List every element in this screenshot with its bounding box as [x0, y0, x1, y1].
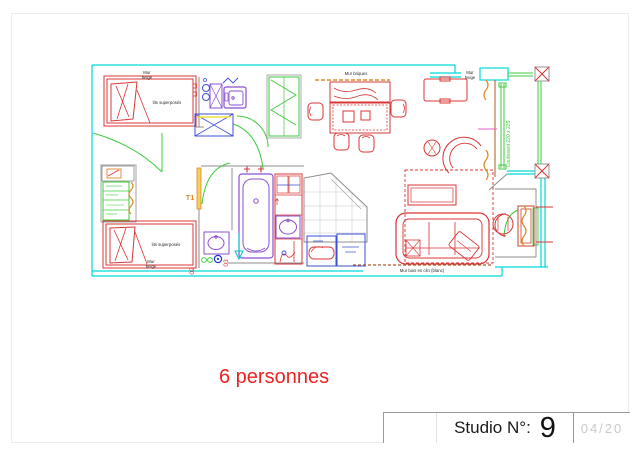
page-ref: 04/20: [574, 413, 630, 443]
bed-label-bottom: lits superposés: [152, 242, 181, 247]
title-block: Studio N°: 9 04/20: [383, 412, 630, 443]
wall-label-beige-topleft-2: beige: [142, 75, 153, 80]
coffee-table: [408, 185, 456, 205]
armchair: [443, 137, 481, 173]
sanitary-purple: [204, 84, 300, 258]
wood-elements: [353, 80, 495, 265]
kitchen-sink: [224, 87, 246, 108]
bath-door-frame: [197, 168, 201, 209]
dining-chairs: [308, 100, 406, 152]
buffet: [330, 82, 390, 103]
studio-number-label: Studio N°:: [454, 418, 531, 438]
bunk-bed-top: [104, 76, 196, 126]
washbasin-column: [276, 216, 300, 238]
studio-number-value: 9: [540, 414, 556, 443]
curtain-bay-top: [484, 80, 488, 100]
rug: [405, 170, 493, 263]
wall-label-beige-bottom-2: beige: [146, 264, 157, 269]
title-block-main-cell: Studio N°: 9: [437, 413, 574, 443]
sliding-door-label: Coulissant 220 x 225: [506, 120, 512, 167]
title-block-empty-cell: [384, 413, 437, 443]
room-type-label: T1: [186, 193, 195, 202]
wall-label-briques: Mur briques: [345, 71, 368, 76]
round-table-window: [493, 214, 513, 234]
bathtub: [239, 174, 273, 258]
sideboard: [424, 77, 467, 103]
curtain-hall: [129, 182, 133, 214]
position-label-02: 02: [189, 267, 196, 275]
curtain-window: [522, 206, 526, 246]
vanity: [204, 232, 229, 254]
sofa: [396, 213, 489, 264]
laundry-cabinets: [307, 234, 365, 266]
fridge: [210, 84, 222, 108]
bed-label-top: lits superposés: [153, 100, 182, 105]
laundry-appliance: [309, 247, 334, 259]
stairs-structure: [304, 173, 367, 242]
balcony-posts: [535, 67, 549, 178]
dining-table: [330, 102, 390, 133]
wall-label-beige-topright-2: beige: [465, 75, 476, 80]
floor-drain: [214, 255, 221, 262]
position-label-03: 03: [223, 259, 230, 267]
capacity-label: 6 personnes: [219, 366, 329, 389]
curtain-bay-bottom: [484, 150, 488, 180]
wall-label-bois: Mur bois en clin (blanc): [400, 268, 445, 273]
